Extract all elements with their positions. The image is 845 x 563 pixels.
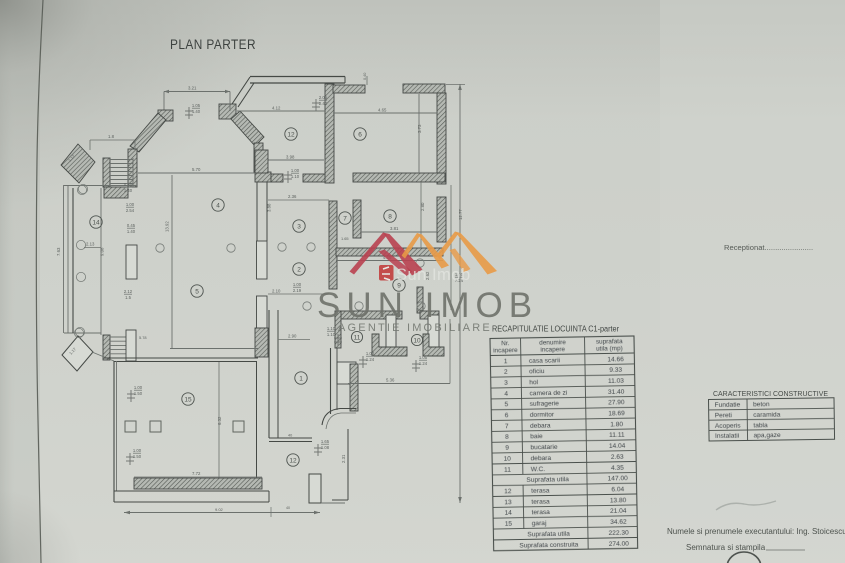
svg-text:6.32: 6.32 [217, 416, 222, 425]
svg-text:Receptionat...................: Receptionat....................... [724, 243, 813, 252]
svg-text:PLAN PARTER: PLAN PARTER [170, 36, 256, 52]
svg-text:1: 1 [299, 375, 303, 382]
svg-text:3.73: 3.73 [417, 124, 422, 133]
svg-text:1.00: 1.00 [126, 202, 135, 207]
svg-text:5: 5 [195, 288, 199, 295]
svg-text:1.08: 1.08 [321, 445, 330, 450]
svg-text:W.C.: W.C. [531, 466, 546, 473]
svg-text:10: 10 [504, 456, 512, 463]
svg-text:2.12: 2.12 [124, 289, 133, 294]
svg-text:CARACTERISTICI CONSTRUCTIVE: CARACTERISTICI CONSTRUCTIVE [713, 389, 828, 398]
svg-text:4.12: 4.12 [272, 106, 281, 111]
svg-text:8: 8 [505, 434, 509, 441]
svg-text:2.63: 2.63 [611, 454, 624, 461]
svg-text:15: 15 [505, 521, 513, 528]
svg-text:6.04: 6.04 [611, 486, 624, 493]
svg-text:27.90: 27.90 [608, 399, 625, 406]
svg-text:Suprafata utila: Suprafata utila [526, 476, 569, 484]
svg-text:2.19: 2.19 [293, 288, 302, 293]
svg-text:13.80: 13.80 [610, 497, 627, 504]
svg-text:Suprafata utila: Suprafata utila [527, 531, 570, 539]
svg-text:1.50: 1.50 [134, 391, 143, 396]
svg-text:21.04: 21.04 [610, 508, 627, 515]
svg-text:10: 10 [413, 337, 421, 344]
svg-text:2.05: 2.05 [319, 95, 328, 100]
svg-text:6: 6 [505, 412, 509, 419]
svg-text:2.80: 2.80 [420, 202, 425, 211]
svg-text:31.40: 31.40 [608, 389, 625, 396]
svg-text:14: 14 [92, 219, 100, 226]
svg-text:2.54: 2.54 [126, 208, 135, 213]
svg-text:2.40: 2.40 [319, 101, 328, 106]
svg-text:0.40: 0.40 [124, 182, 133, 187]
svg-text:5.70: 5.70 [192, 167, 201, 172]
svg-text:12: 12 [289, 457, 297, 464]
svg-text:9.08: 9.08 [100, 247, 105, 256]
svg-text:tabla: tabla [753, 422, 768, 429]
svg-text:1.8: 1.8 [108, 134, 115, 139]
svg-text:Sun Imob: Sun Imob [396, 266, 471, 284]
svg-text:11.11: 11.11 [609, 432, 625, 439]
svg-text:40: 40 [286, 506, 290, 510]
svg-text:7.72: 7.72 [192, 471, 201, 476]
svg-text:1.80: 1.80 [610, 421, 623, 428]
svg-text:sufragerie: sufragerie [530, 401, 560, 409]
svg-text:1.65: 1.65 [321, 439, 330, 444]
svg-text:1.00: 1.00 [291, 168, 300, 173]
svg-text:terasa: terasa [531, 509, 550, 516]
svg-text:1.05: 1.05 [419, 355, 428, 360]
svg-text:caramida: caramida [753, 411, 781, 418]
svg-text:11: 11 [504, 466, 511, 473]
svg-text:casa scarii: casa scarii [529, 357, 561, 365]
svg-text:222.30: 222.30 [608, 530, 629, 537]
svg-text:8: 8 [388, 213, 392, 220]
svg-text:debara: debara [530, 422, 551, 429]
svg-text:0.45: 0.45 [127, 223, 136, 228]
svg-text:14.66: 14.66 [607, 356, 624, 363]
svg-text:2: 2 [504, 369, 508, 376]
svg-text:oficiu: oficiu [529, 368, 545, 375]
svg-text:hol: hol [529, 379, 538, 386]
svg-text:12: 12 [504, 488, 512, 495]
svg-text:1.00: 1.00 [134, 385, 143, 390]
svg-text:debara: debara [531, 455, 552, 462]
svg-text:9.02: 9.02 [215, 507, 224, 512]
svg-text:18.69: 18.69 [608, 410, 625, 417]
svg-text:1.24: 1.24 [419, 361, 428, 366]
svg-text:1.65: 1.65 [341, 236, 349, 241]
svg-text:terasa: terasa [531, 487, 550, 494]
svg-text:3: 3 [297, 223, 301, 230]
svg-text:1.00: 1.00 [293, 282, 302, 287]
svg-text:apa,gaze: apa,gaze [753, 432, 781, 439]
svg-text:2.13: 2.13 [86, 242, 95, 247]
svg-text:14.04: 14.04 [609, 443, 626, 450]
svg-text:AGENTIE IMOBILIARE: AGENTIE IMOBILIARE [338, 322, 492, 334]
svg-text:0.40: 0.40 [363, 73, 367, 80]
svg-text:Acoperis: Acoperis [715, 422, 741, 429]
svg-text:2: 2 [297, 266, 301, 273]
svg-text:Fundatie: Fundatie [715, 402, 741, 409]
svg-text:2.31: 2.31 [341, 454, 346, 463]
svg-text:3: 3 [504, 380, 508, 387]
svg-text:1.00: 1.00 [366, 351, 375, 356]
svg-text:40: 40 [288, 434, 292, 438]
svg-text:4: 4 [216, 202, 220, 209]
svg-text:2.10: 2.10 [272, 289, 281, 294]
svg-text:2.90: 2.90 [288, 334, 297, 339]
svg-text:13.92: 13.92 [165, 221, 170, 232]
svg-text:1.10: 1.10 [291, 174, 300, 179]
svg-text:1.00: 1.00 [133, 448, 142, 453]
svg-text:3.88: 3.88 [267, 203, 272, 212]
svg-text:15: 15 [184, 396, 192, 403]
svg-text:3.21: 3.21 [188, 86, 197, 91]
svg-text:incapere: incapere [540, 346, 565, 353]
svg-text:12: 12 [287, 131, 295, 138]
svg-text:7.63: 7.63 [56, 247, 61, 256]
svg-text:SUN IMOB: SUN IMOB [317, 286, 538, 325]
svg-text:1.10: 1.10 [327, 326, 336, 331]
svg-text:9.33: 9.33 [609, 367, 622, 374]
svg-text:1.40: 1.40 [127, 229, 136, 234]
svg-text:2.36: 2.36 [288, 194, 297, 199]
svg-text:1.50: 1.50 [133, 454, 142, 459]
svg-text:11.03: 11.03 [608, 378, 624, 385]
svg-text:9: 9 [505, 445, 509, 452]
svg-text:camera de zi: camera de zi [529, 390, 567, 398]
svg-text:4.65: 4.65 [378, 108, 387, 113]
svg-text:RECAPITULATIE LOCUINTA C1-par: RECAPITULATIE LOCUINTA C1-parter [492, 325, 619, 334]
svg-text:1.5: 1.5 [125, 295, 131, 300]
svg-text:1.40: 1.40 [192, 109, 201, 114]
svg-text:11: 11 [354, 334, 361, 341]
svg-text:Pereti: Pereti [715, 412, 733, 419]
svg-text:1.40: 1.40 [124, 188, 133, 193]
svg-text:34.62: 34.62 [610, 519, 627, 526]
svg-text:5.36: 5.36 [386, 378, 395, 383]
svg-text:Instalatii: Instalatii [715, 433, 740, 440]
svg-text:Semnatura si stampila: Semnatura si stampila [686, 543, 766, 552]
svg-text:5: 5 [504, 401, 508, 408]
svg-text:garaj: garaj [532, 520, 547, 527]
svg-text:1.10: 1.10 [327, 332, 336, 337]
svg-text:1.24: 1.24 [366, 357, 375, 362]
svg-text:terasa: terasa [531, 498, 550, 505]
svg-text:6: 6 [358, 131, 362, 138]
svg-text:7: 7 [343, 215, 347, 222]
svg-text:13: 13 [504, 499, 512, 506]
svg-text:dormitor: dormitor [530, 411, 555, 418]
svg-text:3.81: 3.81 [390, 226, 399, 231]
svg-text:bucatarie: bucatarie [530, 444, 558, 451]
svg-text:7: 7 [505, 423, 509, 430]
svg-text:14: 14 [505, 510, 513, 517]
svg-text:utila (mp): utila (mp) [596, 345, 623, 352]
svg-text:147.00: 147.00 [608, 475, 629, 482]
svg-text:incapere: incapere [493, 347, 518, 354]
svg-text:274.00: 274.00 [609, 540, 630, 547]
svg-text:5.78: 5.78 [139, 335, 147, 340]
svg-text:3.98: 3.98 [286, 155, 295, 160]
svg-text:baie: baie [530, 433, 543, 440]
svg-text:Suprafata construita: Suprafata construita [519, 541, 578, 549]
svg-text:beton: beton [753, 401, 770, 408]
svg-text:1: 1 [504, 358, 508, 365]
svg-text:Numele si prenumele executantu: Numele si prenumele executantului: Ing. … [667, 527, 845, 536]
svg-text:4: 4 [504, 391, 508, 398]
svg-text:12.77: 12.77 [458, 209, 463, 220]
svg-text:1.05: 1.05 [192, 103, 201, 108]
svg-text:4.35: 4.35 [611, 464, 624, 471]
